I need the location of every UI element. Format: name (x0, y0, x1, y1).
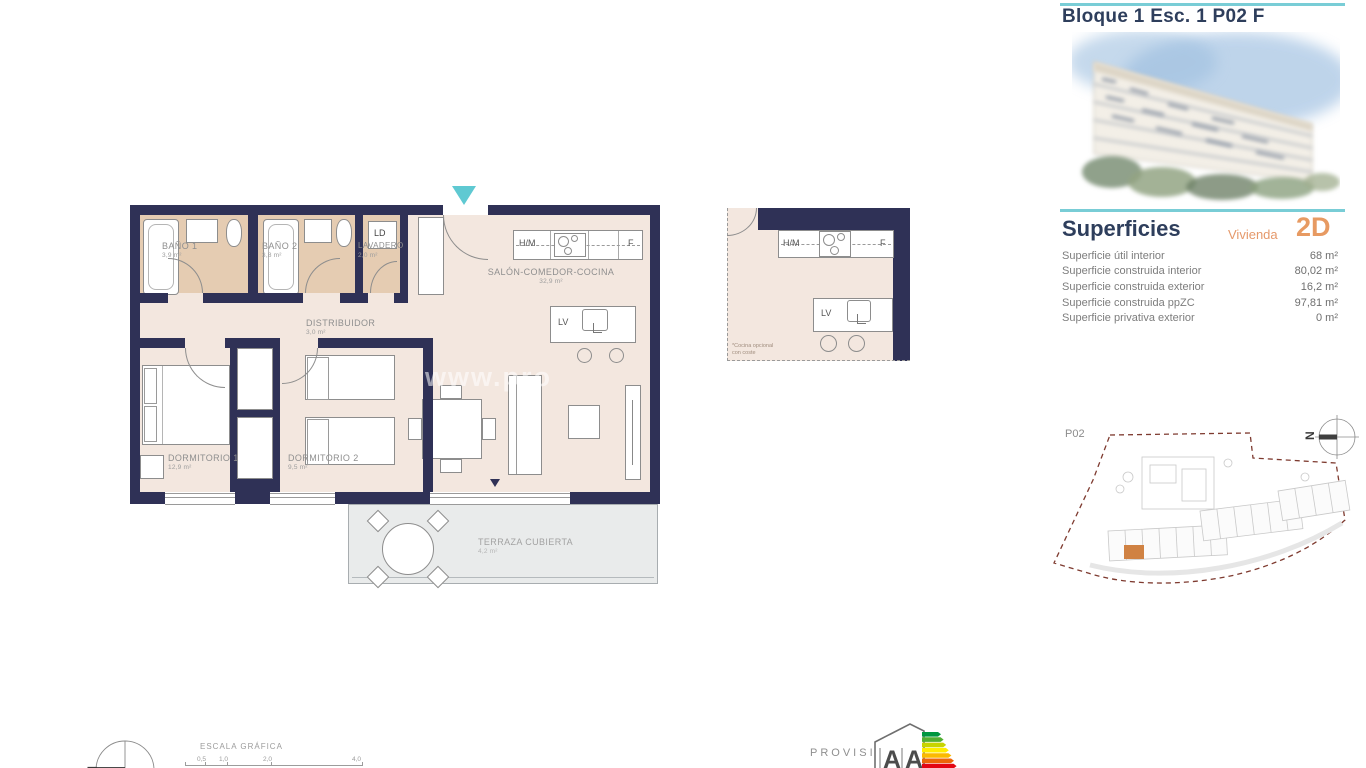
scale-tick: 4,0 (352, 756, 361, 763)
superficie-label: Superficie privativa exterior (1062, 312, 1195, 324)
sliding-door (430, 493, 570, 505)
scale-bar (185, 765, 363, 766)
superficie-value: 68 m² (1310, 250, 1338, 262)
scale-bar-tick (227, 762, 228, 766)
window-line (270, 497, 335, 498)
hm-label: H/M (783, 238, 800, 248)
entrance-marker (452, 186, 476, 205)
superficie-value: 16,2 m² (1301, 281, 1338, 293)
pillow (144, 406, 157, 442)
room-label-bano1: BAÑO 1 3,9 m² (162, 241, 197, 261)
superficies-heading: Superficies (1062, 216, 1181, 242)
wall (758, 208, 910, 230)
terrace-door-marker (490, 479, 500, 487)
room-name: BAÑO 1 (162, 241, 197, 251)
nightstand (140, 455, 164, 479)
superficie-label: Superficie útil interior (1062, 250, 1165, 262)
room-label-dorm1: DORMITORIO 1 12,9 m² (168, 453, 239, 473)
wall (335, 492, 430, 504)
chair (440, 459, 462, 473)
sink-faucet (593, 323, 602, 333)
room-area: 2,0 m² (358, 251, 404, 261)
superficie-value: 80,02 m² (1295, 265, 1338, 277)
lv-label: LV (558, 317, 568, 327)
room-name: DISTRIBUIDOR (306, 318, 375, 328)
vivienda-code: 2D (1296, 212, 1331, 243)
energy-bars (922, 732, 957, 768)
fridge-label: F (628, 238, 634, 248)
window-line (165, 497, 235, 498)
room-label-bano2: BAÑO 2 3,8 m² (262, 241, 297, 261)
room-area: 3,9 m² (162, 251, 197, 261)
energy-label: A A (872, 722, 972, 768)
chair (482, 418, 496, 440)
detail-boundary (727, 360, 910, 361)
tv-unit (625, 385, 641, 480)
hob-ring (571, 235, 578, 242)
superficie-row: Superficie privativa exterior 0 m² (1062, 310, 1338, 326)
sheet-title: Bloque 1 Esc. 1 P02 F (1062, 6, 1265, 28)
room-area: 3,8 m² (262, 251, 297, 261)
building-illustration (1072, 32, 1340, 204)
compass-north-label: N (1303, 431, 1317, 440)
siteplan: N (1050, 415, 1360, 590)
laundry-label: LD (374, 228, 386, 238)
scale-heading: ESCALA GRÁFICA (200, 742, 283, 751)
armchair (568, 405, 600, 439)
wall (130, 205, 140, 504)
wall (130, 205, 443, 215)
stool (820, 335, 837, 352)
room-area: 32,9 m² (466, 277, 636, 287)
wall (248, 205, 258, 303)
lv-label: LV (821, 308, 831, 318)
room-label-salon: SALÓN-COMEDOR-COCINA 32,9 m² (466, 267, 636, 287)
footer-compass: N (85, 736, 165, 768)
room-label-dorm2: DORMITORIO 2 9,5 m² (288, 453, 359, 473)
toilet (226, 219, 242, 247)
sliding-door-line (430, 497, 570, 498)
energy-letter: A (883, 746, 901, 768)
room-name: DORMITORIO 2 (288, 453, 359, 463)
bed-line (162, 366, 163, 444)
stool (848, 335, 865, 352)
stool (609, 348, 624, 363)
kitchen-detail-plan: H/M F LV *Cocina opcional con coste (727, 203, 922, 365)
highlighted-unit (1124, 545, 1144, 559)
wardrobe (237, 348, 273, 410)
fridge-label: F (880, 238, 886, 248)
superficie-value: 97,81 m² (1295, 297, 1338, 309)
room-area: 4,2 m² (478, 547, 573, 557)
hob-ring (830, 246, 839, 255)
sink-faucet (857, 314, 866, 324)
room-area: 9,5 m² (288, 463, 359, 473)
superficies-table: Superficie útil interior 68 m² Superfici… (1062, 248, 1338, 326)
terrace-inner-line (352, 577, 654, 578)
floorplan-sheet: LD H/M F LV (0, 0, 1366, 768)
room-name: LAVADERO (358, 241, 404, 250)
note-line: con coste (732, 350, 773, 357)
superficie-row: Superficie útil interior 68 m² (1062, 248, 1338, 264)
wall (225, 338, 235, 348)
window (270, 493, 335, 505)
hob-ring (837, 233, 845, 241)
wall (340, 293, 368, 303)
toilet (336, 219, 352, 247)
terrace-table (382, 523, 434, 575)
superficie-label: Superficie construida exterior (1062, 281, 1204, 293)
scale-bar-tick (205, 762, 206, 766)
superficie-row: Superficie construida interior 80,02 m² (1062, 264, 1338, 280)
wall (140, 293, 168, 303)
wall (130, 492, 165, 504)
superficie-label: Superficie construida interior (1062, 265, 1201, 277)
wall (318, 338, 423, 348)
wall (203, 293, 248, 303)
room-label-lavadero: LAVADERO 2,0 m² (358, 241, 404, 261)
wall (650, 205, 660, 504)
window (165, 493, 235, 505)
superficie-value: 0 m² (1316, 312, 1338, 324)
superficie-label: Superficie construida ppZC (1062, 297, 1195, 309)
hob-ring (823, 234, 835, 246)
room-area: 3,0 m² (306, 328, 375, 338)
room-label-terraza: TERRAZA CUBIERTA 4,2 m² (478, 537, 573, 557)
watermark: www.pro (425, 362, 552, 393)
hm-label: H/M (519, 238, 536, 248)
superficie-row: Superficie construida ppZC 97,81 m² (1062, 295, 1338, 311)
energy-letter: A (905, 746, 923, 768)
vivienda-label: Vivienda (1228, 227, 1278, 242)
entry-wardrobe (418, 217, 444, 295)
wall (570, 492, 660, 504)
room-name: DORMITORIO 1 (168, 453, 239, 463)
wall (258, 293, 303, 303)
room-name: BAÑO 2 (262, 241, 297, 251)
hob-ring (558, 236, 569, 247)
room-name: SALÓN-COMEDOR-COCINA (488, 267, 615, 277)
room-name: TERRAZA CUBIERTA (478, 537, 573, 547)
scale-bar-tick (362, 762, 363, 766)
siteplan-compass: N (1303, 415, 1359, 459)
washbasin (186, 219, 218, 243)
wall (893, 208, 910, 361)
main-floorplan: LD H/M F LV (130, 205, 660, 590)
tv-line (632, 400, 633, 465)
room-label-distribuidor: DISTRIBUIDOR 3,0 m² (306, 318, 375, 338)
wall (140, 338, 185, 348)
wall (488, 205, 660, 215)
stool (577, 348, 592, 363)
superficie-row: Superficie construida exterior 16,2 m² (1062, 279, 1338, 295)
hob-ring (564, 247, 572, 255)
note-line: *Cocina opcional (732, 343, 773, 350)
scale-bar-tick (271, 762, 272, 766)
wardrobe (237, 417, 273, 479)
wall (235, 492, 270, 504)
washbasin (304, 219, 332, 243)
pillow (144, 368, 157, 404)
chair (408, 418, 422, 440)
room-area: 12,9 m² (168, 463, 239, 473)
scale-bar-tick (185, 762, 186, 766)
kitchen-note: *Cocina opcional con coste (732, 343, 773, 357)
